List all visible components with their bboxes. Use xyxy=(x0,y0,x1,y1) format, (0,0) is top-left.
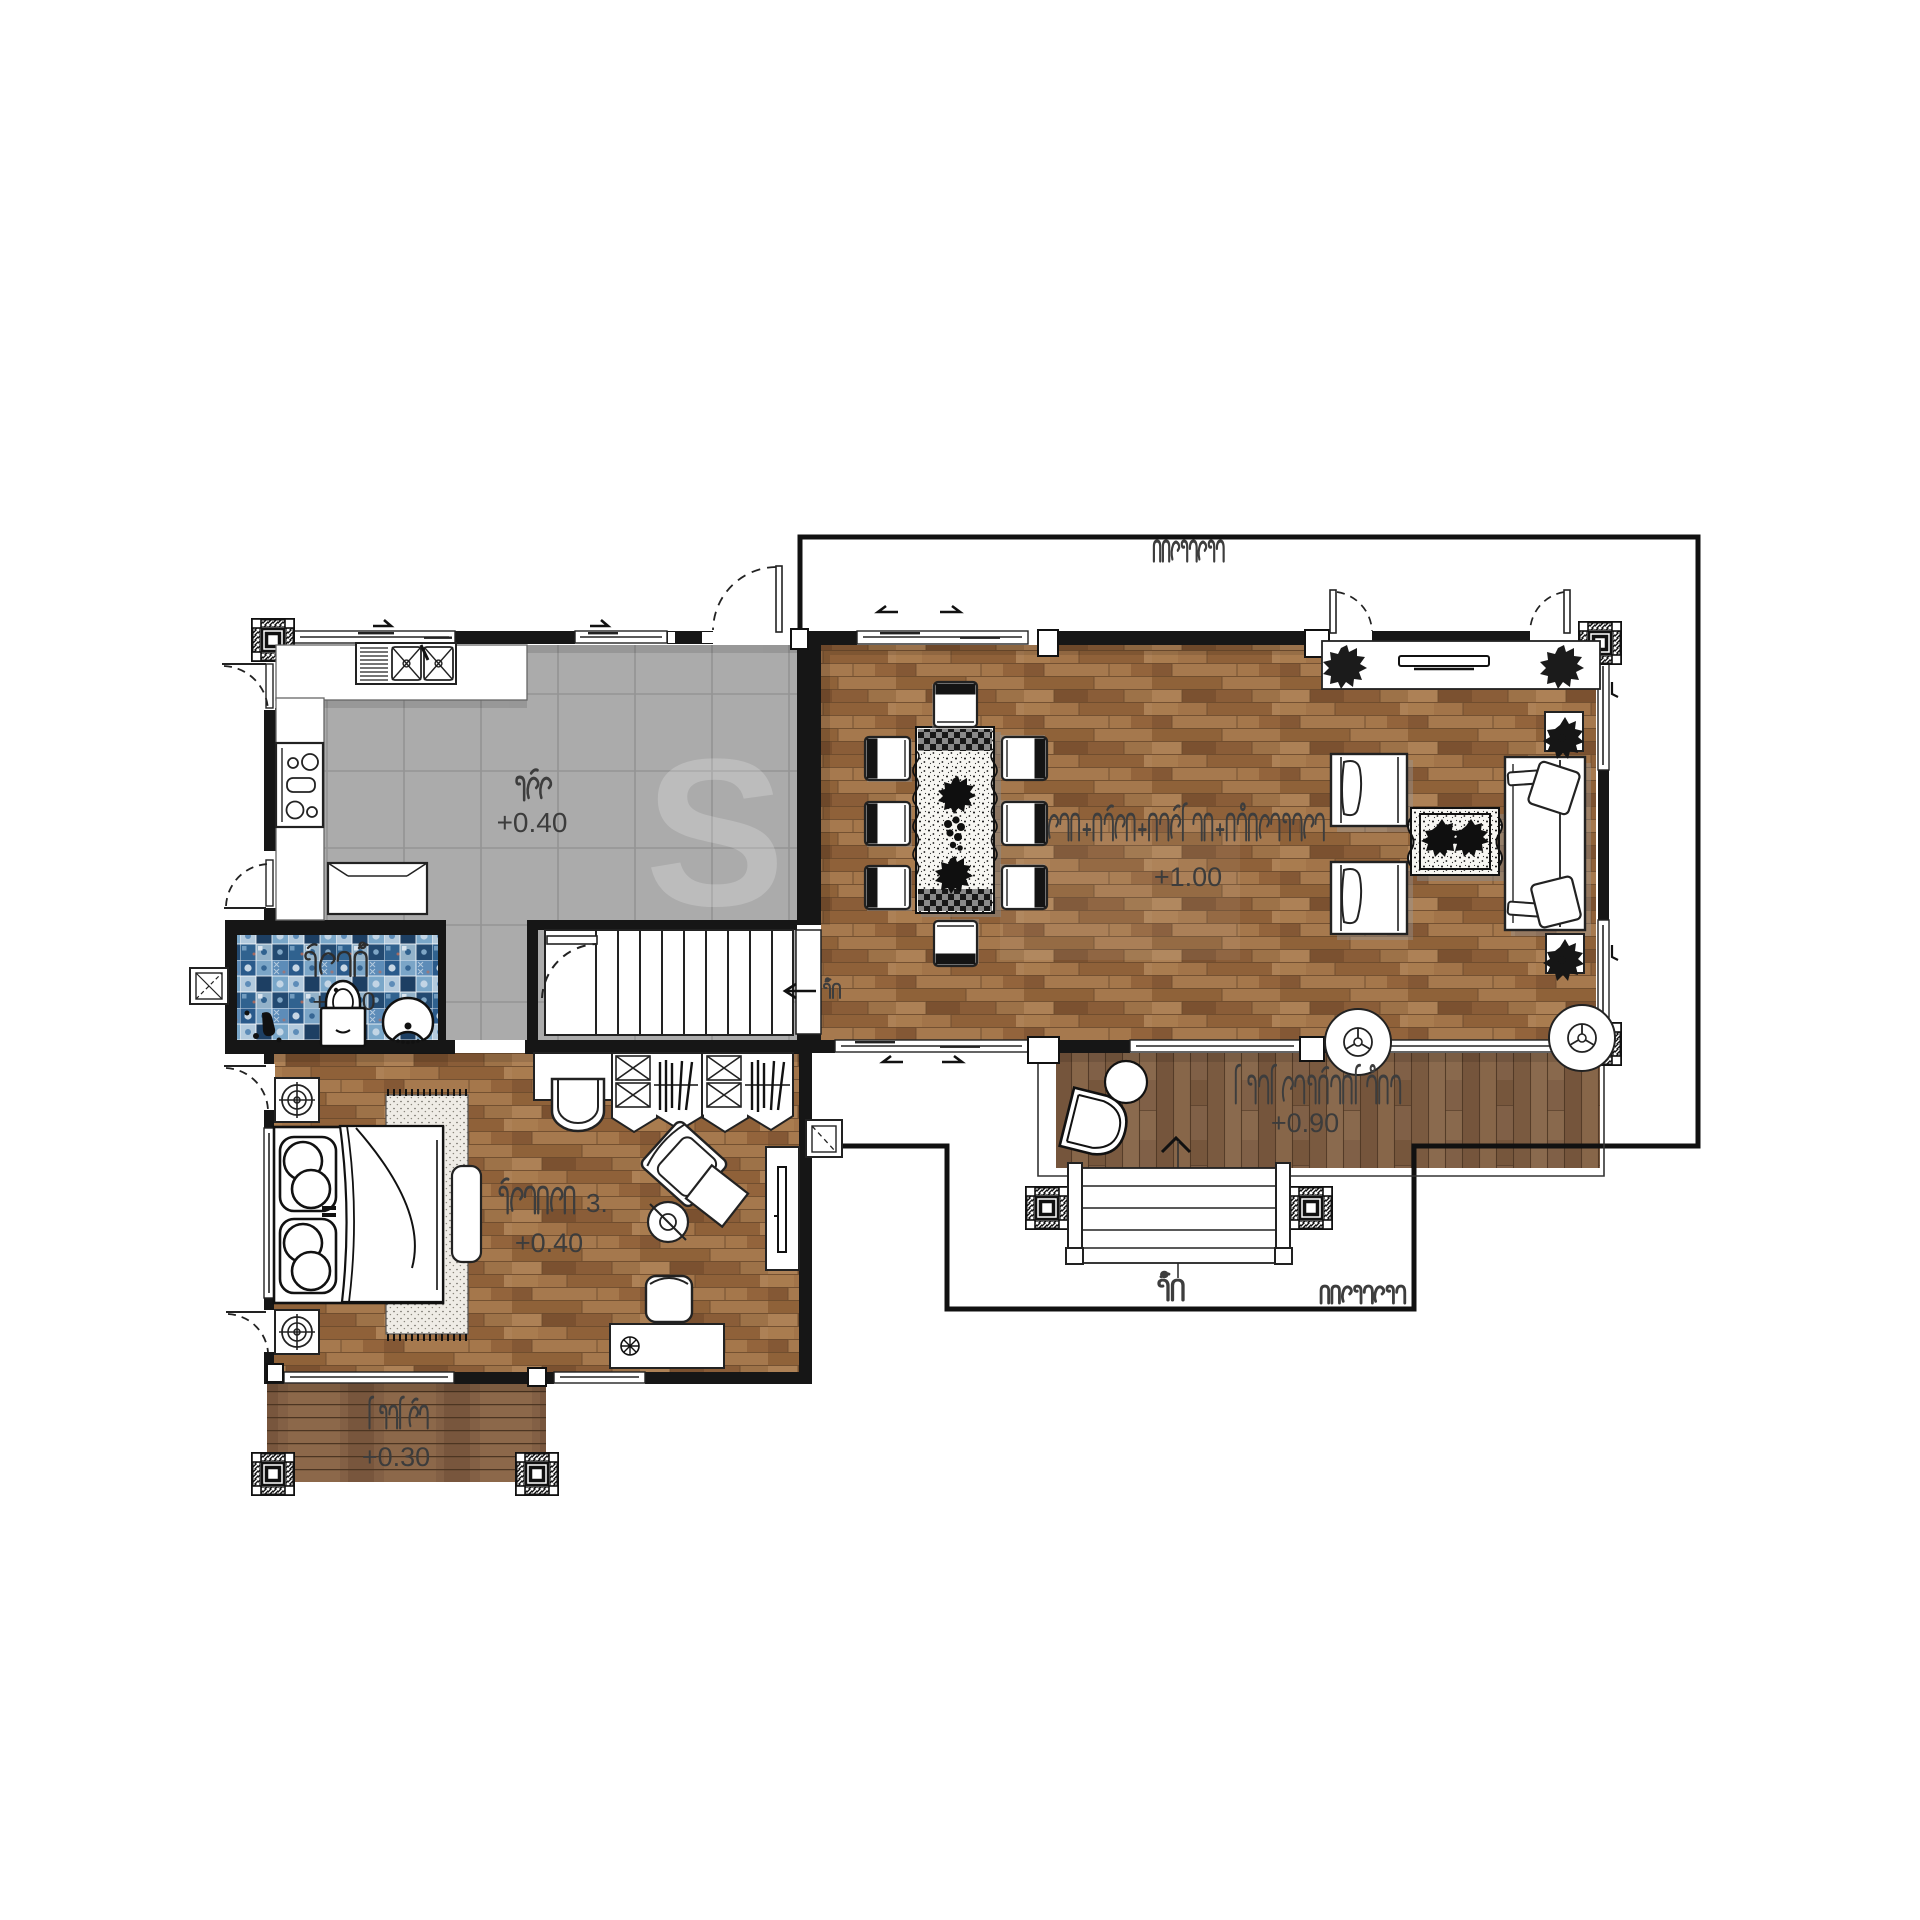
svg-text:S: S xyxy=(645,715,785,950)
svg-text:+0.90: +0.90 xyxy=(1271,1108,1339,1138)
svg-text:+0.40: +0.40 xyxy=(515,1228,583,1258)
svg-text:+1.00: +1.00 xyxy=(1154,862,1222,892)
svg-text:+0.30: +0.30 xyxy=(362,1442,430,1472)
svg-text:+0.40: +0.40 xyxy=(497,807,568,838)
svg-text:3.: 3. xyxy=(586,1188,608,1218)
